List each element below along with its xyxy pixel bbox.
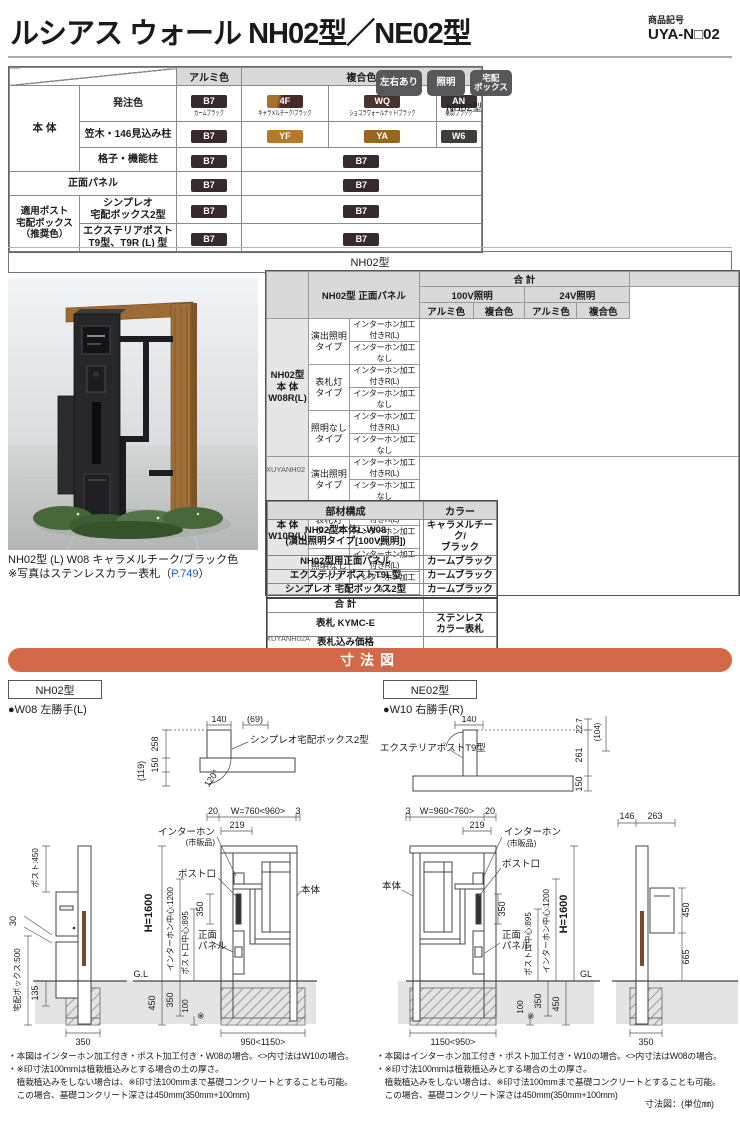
dim-label: W=760<960> (231, 806, 285, 816)
color-chip-b7: B7 (343, 233, 379, 246)
part-label-front-panel: パネル (198, 941, 227, 952)
dim-label: 450 (147, 995, 157, 1010)
dim-label: 950<1150> (241, 1037, 286, 1047)
color-name-b7: カームブラック (189, 110, 229, 117)
parts-item: エクステリアポストT9L型 (268, 569, 424, 583)
chip-cell: YF (242, 122, 329, 148)
chip-cell: B7 (177, 196, 242, 224)
dim-label: 150 (574, 776, 584, 791)
ground-line-label: GL (580, 969, 592, 979)
note-line: 植栽植込みをしない場合は、※印寸法100mmまで基礎コンクリートとすることも可能… (376, 1076, 740, 1089)
dim-label: 135 (30, 985, 40, 1000)
badge-delivery-box: 宅配 ボックス (470, 70, 512, 96)
row-label-order-color: 発注色 (80, 86, 177, 122)
corner-diagonal-cell (10, 68, 177, 86)
price-cell-empty (419, 342, 738, 365)
color-chip-b7: B7 (191, 205, 227, 218)
chip-cell: 4Fキャラメルチーク/ブラック (242, 86, 329, 122)
row-group-post: 適用ポスト 宅配ボックス （推奨色） (10, 196, 80, 252)
dim-label: 219 (469, 820, 484, 830)
note-line: ・本図はインターホン加工付き・ポスト加工付き・W08の場合。<>内寸法はW10の… (8, 1050, 372, 1063)
dim-label: 350 (497, 901, 507, 916)
ne02-variant-label: ●W10 右勝手(R) (383, 701, 464, 717)
header-total: 合 計 (419, 272, 630, 287)
header-divider (8, 56, 732, 58)
price-cell-empty (419, 365, 738, 388)
row-label-kasagi: 笠木・146見込み柱 (80, 122, 177, 148)
dim-label: 100 (181, 999, 190, 1013)
parts-item: NH02型用正面パネル (268, 555, 424, 569)
table-row: NH02型用正面パネル カームブラック (268, 555, 497, 569)
dim-label: 20 (208, 806, 218, 816)
dim-label: (69) (247, 716, 263, 724)
variant-with-interphone: インターホン加工付きR(L) (349, 319, 419, 342)
dim-label: 140 (211, 716, 226, 724)
variant-no-interphone: インターホン加工なし (349, 434, 419, 457)
dim-label: 450 (551, 996, 561, 1011)
color-chip-ya: YA (364, 130, 400, 143)
type-stage-light: 演出照明 タイプ (308, 457, 349, 503)
price-cell-empty (419, 411, 738, 434)
part-label-front-panel: 正面 (198, 930, 217, 941)
unit-note: 寸法図：(単位㎜) (645, 1097, 714, 1110)
nh02-variant-label: ●W08 左勝手(L) (8, 701, 87, 717)
dim-label: 22.7 (575, 718, 584, 734)
dim-label: ポスト:450 (31, 848, 40, 888)
parts-color (424, 598, 497, 612)
dim-label: 350 (195, 901, 205, 916)
table-code: XUYANH02A (266, 634, 310, 643)
parts-header-color: カラー (424, 502, 497, 520)
dim-label: インターホン中心:1200 (165, 886, 175, 971)
chip-cell: B7 (242, 196, 482, 224)
chip-cell: B7 (177, 172, 242, 196)
color-chip-b7: B7 (191, 95, 227, 108)
header-front-panel: NH02型 正面パネル (308, 272, 419, 319)
table-row: 表札灯 タイプ インターホン加工付きR(L) (267, 365, 739, 388)
dim-label: 30 (8, 916, 18, 926)
part-label-interphone2: (市販品) (186, 837, 216, 847)
price-cell-empty (419, 319, 738, 342)
ground-line-label: G.L (133, 969, 148, 979)
nameplate (82, 326, 110, 354)
dim-label: 140 (461, 716, 476, 724)
trailing-blank (630, 287, 739, 319)
header-trailing (630, 272, 739, 287)
dim-label: 450 (681, 902, 691, 917)
table-row: NH02型 本 体 W08R(L) 演出照明 タイプ インターホン加工付きR(L… (267, 319, 739, 342)
dim-label: 宅配ボックス:500 (12, 948, 22, 1012)
nh02-model-label: NH02型 (8, 680, 102, 699)
note-line: 植栽植込みをしない場合は、※印寸法100mmまで基礎コンクリートとすることも可能… (8, 1076, 372, 1089)
color-chip-b7: B7 (343, 155, 379, 168)
badge-model-note: NH02型 (376, 99, 482, 114)
parts-item: シンプレオ 宅配ボックス2型 (268, 583, 424, 597)
product-code-label: 商品記号 (648, 13, 720, 26)
chip-cell: B7 (242, 172, 482, 196)
dim-label: 146 (619, 811, 634, 821)
header-alumi: アルミ色 (419, 303, 473, 319)
dim-label-height: H=1600 (143, 894, 155, 933)
part-label-body: 本体 (301, 884, 321, 896)
ne02-dimension-drawing: 140 22.7 (104) 261 150 エクステリアポストT9型 3 W=… (378, 716, 740, 1056)
row-label-front-panel: 正面パネル (10, 172, 177, 196)
row-label-koshi: 格子・機能柱 (80, 148, 177, 172)
dim-label: 263 (647, 811, 662, 821)
dim-label-height: H=1600 (558, 895, 570, 934)
product-code-block: 商品記号 UYA-N□02 (648, 13, 720, 43)
catalog-page: { "header": { "title": "ルシアス ウォール NH02型／… (0, 0, 740, 1123)
color-chip-b7: B7 (343, 205, 379, 218)
dim-label: インターホン中心:1200 (541, 888, 551, 973)
color-chip-b7: B7 (191, 233, 227, 246)
type-nameplate-light: 表札灯 タイプ (308, 365, 349, 411)
variant-no-interphone: インターホン加工なし (349, 388, 419, 411)
parts-total: 合 計 (268, 598, 424, 612)
dim-label: 100 (516, 1000, 525, 1014)
type-stage-light: 演出照明 タイプ (308, 319, 349, 365)
structure-drawing (33, 730, 317, 1024)
asterisk-mark: ※ (197, 1011, 205, 1021)
color-chip-b7: B7 (191, 179, 227, 192)
dimension-section-header: 寸法図 (8, 648, 732, 672)
part-label-delivery-box: シンプレオ宅配ボックス2型 (250, 734, 369, 746)
dim-label: 350 (533, 993, 543, 1008)
part-label-exterior-post: エクステリアポストT9型 (380, 743, 486, 754)
asterisk-mark: ※ (527, 1011, 535, 1021)
header-fukugo: 複合色 (577, 303, 630, 319)
color-chip-4f: 4F (267, 95, 303, 108)
caption-text: ） (199, 568, 210, 580)
price-cell-empty (419, 457, 738, 480)
table-row: 照明なし タイプ インターホン加工付きR(L) (267, 411, 739, 434)
product-code: UYA-N□02 (648, 26, 720, 43)
part-label-post-slot: ポスト口 (178, 869, 216, 880)
nh02-notes: ・本図はインターホン加工付き・ポスト加工付き・W08の場合。<>内寸法はW10の… (8, 1050, 372, 1102)
photo-caption: NH02型 (L) W08 キャラメルチーク/ブラック色 ※写真はステンレスカラ… (8, 553, 238, 582)
caption-text: ※写真はステンレスカラー表札（ (8, 568, 171, 580)
parts-color: カームブラック (424, 583, 497, 597)
nh02-dimension-drawing: 140 (69) 258 150 (119) 120° シンプレオ宅配ボックス2… (0, 716, 380, 1056)
part-label-body: 本体 (382, 880, 402, 892)
dim-label: (119) (136, 761, 146, 781)
parts-table: 部材構成 カラー NH02型本体L-W08 (演出照明タイプ[100V照明]) … (266, 500, 498, 652)
variant-with-interphone: インターホン加工付きR(L) (349, 457, 419, 480)
color-chip-yf: YF (267, 130, 303, 143)
price-cell-empty (419, 434, 738, 457)
ne02-notes: ・本図はインターホン加工付き・ポスト加工付き・W10の場合。<>内寸法はW08の… (376, 1050, 740, 1102)
table-row: 合 計 (268, 598, 497, 612)
page-reference-link[interactable]: P.749 (171, 568, 198, 580)
part-label-interphone: インターホン (158, 827, 215, 838)
header-fukugo: 複合色 (473, 303, 525, 319)
chip-cell: B7カームブラック (177, 86, 242, 122)
dim-label: 350 (165, 992, 175, 1007)
note-line: ・本図はインターホン加工付き・ポスト加工付き・W10の場合。<>内寸法はW08の… (376, 1050, 740, 1063)
note-line: ・※印寸法100mmは植栽植込みとする場合の土の厚さ。 (376, 1063, 740, 1076)
product-photo (8, 278, 258, 550)
dim-label: (104) (593, 722, 602, 741)
color-chip-b7: B7 (191, 155, 227, 168)
badge-left-right: 左右あり (376, 70, 422, 96)
section-divider (8, 247, 732, 248)
dim-label: ポスト口中心:895 (180, 911, 190, 975)
dim-label: 261 (574, 747, 584, 762)
group-w08: NH02型 本 体 W08R(L) (267, 319, 309, 457)
header-alumi: アルミ色 (525, 303, 577, 319)
col-header-alumi: アルミ色 (177, 68, 242, 86)
table-row: NH02型本体L-W08 (演出照明タイプ[100V照明]) キャラメルチーク/… (268, 520, 497, 556)
dim-label: 665 (681, 949, 691, 964)
dim-label: 150 (150, 757, 160, 772)
note-line: この場合、基礎コンクリート深さは450mm(350mm+100mm) (8, 1089, 372, 1102)
table-code: XUYANH02 (266, 465, 305, 474)
color-chip-b7: B7 (191, 130, 227, 143)
variant-with-interphone: インターホン加工付きR(L) (349, 411, 419, 434)
dim-label: W=960<760> (420, 806, 474, 816)
part-label-interphone: インターホン (504, 827, 561, 838)
dim-label: 20 (485, 806, 495, 816)
dim-label: 258 (150, 736, 160, 751)
variant-no-interphone: インターホン加工なし (349, 342, 419, 365)
chip-cell: B7 (242, 148, 482, 172)
chip-cell: W6 (436, 122, 481, 148)
chip-cell: B7 (177, 122, 242, 148)
header-24v: 24V照明 (525, 287, 630, 303)
page-title: ルシアス ウォール NH02型／NE02型 (10, 10, 471, 52)
table-row: NH02型 本 体 W10R(L) 演出照明 タイプ インターホン加工付きR(L… (267, 457, 739, 480)
photo-caption-line1: NH02型 (L) W08 キャラメルチーク/ブラック色 (8, 553, 238, 567)
part-label-post-slot: ポスト口 (502, 859, 540, 870)
parts-color: キャラメルチーク/ ブラック (424, 520, 497, 556)
dim-label: 350 (75, 1037, 90, 1047)
photo-caption-line2: ※写真はステンレスカラー表札（P.749） (8, 567, 238, 581)
dim-label: 3 (295, 806, 300, 816)
dim-label: 1150<950> (431, 1037, 476, 1047)
type-no-light: 照明なし タイプ (308, 411, 349, 457)
part-label-front-panel: パネル (502, 941, 531, 952)
feature-badges: 左右あり 照明 宅配 ボックス (376, 70, 512, 96)
parts-header-item: 部材構成 (268, 502, 424, 520)
corner-blank (267, 272, 309, 319)
color-name-4f: キャラメルチーク/ブラック (258, 110, 311, 117)
note-line: ・※印寸法100mmは植栽植込みとする場合の土の厚さ。 (8, 1063, 372, 1076)
parts-color: カームブラック (424, 555, 497, 569)
row-label-simpleo: シンプレオ 宅配ボックス2型 (80, 196, 177, 224)
dim-label: 3 (405, 806, 410, 816)
parts-color: カームブラック (424, 569, 497, 583)
parts-item: NH02型本体L-W08 (演出照明タイプ[100V照明]) (268, 520, 424, 556)
structure-drawing (406, 730, 738, 1024)
table-row: シンプレオ 宅配ボックス2型 カームブラック (268, 583, 497, 597)
part-label-interphone2: (市販品) (507, 838, 537, 848)
price-cell-empty (419, 388, 738, 411)
part-label-front-panel: 正面 (502, 930, 521, 941)
post-slot (92, 402, 101, 464)
chip-cell: YA (328, 122, 436, 148)
chip-cell: B7 (177, 148, 242, 172)
variant-with-interphone: インターホン加工付きR(L) (349, 365, 419, 388)
badge-lighting: 照明 (427, 70, 465, 96)
interphone (87, 366, 105, 392)
ne02-model-label: NE02型 (383, 680, 477, 699)
parts-color: ステンレス カラー表札 (424, 612, 497, 637)
color-chip-w6: W6 (441, 130, 477, 143)
color-chip-b7: B7 (343, 179, 379, 192)
dim-label: 350 (638, 1037, 653, 1047)
header-100v: 100V照明 (419, 287, 525, 303)
dim-label: 219 (229, 820, 244, 830)
table-row: エクステリアポストT9L型 カームブラック (268, 569, 497, 583)
row-group-hontai: 本 体 (10, 86, 80, 172)
